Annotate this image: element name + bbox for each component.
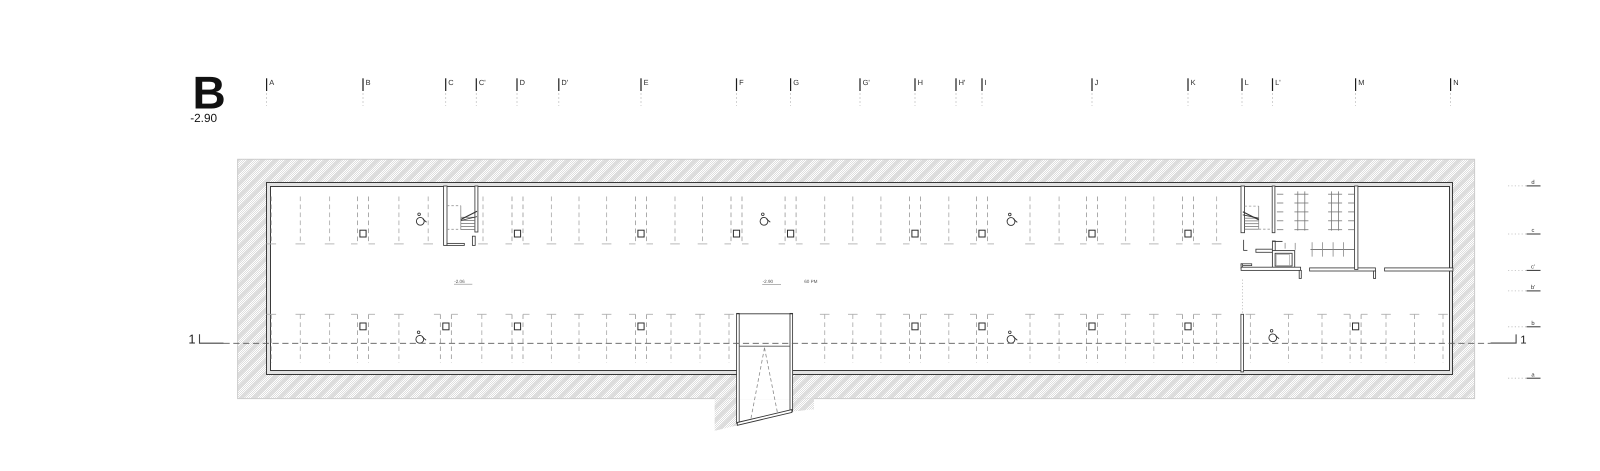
svg-text:J: J [1095,78,1099,87]
svg-text:L: L [1245,78,1249,87]
svg-text:D': D' [561,78,568,87]
svg-text:I: I [985,78,987,87]
svg-text:F: F [739,78,744,87]
svg-text:c: c [1532,228,1535,234]
svg-text:G: G [793,78,799,87]
svg-text:-2.90: -2.90 [763,279,774,284]
svg-text:E: E [644,78,649,87]
svg-text:c': c' [1531,265,1535,271]
svg-text:C': C' [479,78,486,87]
svg-text:b': b' [1531,284,1535,291]
svg-text:K: K [1191,78,1196,87]
svg-text:M: M [1358,78,1364,87]
svg-text:1: 1 [188,332,195,347]
svg-text:b: b [1531,320,1534,327]
svg-text:A: A [269,78,274,87]
svg-text:d: d [1531,179,1534,186]
svg-text:B: B [366,78,371,87]
svg-text:G': G' [863,78,871,87]
svg-text:H': H' [959,78,966,87]
svg-text:N: N [1453,78,1458,87]
svg-text:D: D [520,78,525,87]
svg-text:1: 1 [1520,335,1526,347]
svg-text:C: C [448,78,454,87]
svg-text:-2.06: -2.06 [454,279,465,284]
svg-text:60 PM: 60 PM [804,279,817,284]
svg-text:H: H [918,78,923,87]
svg-text:-2.90: -2.90 [190,111,217,125]
svg-text:L': L' [1275,78,1281,87]
